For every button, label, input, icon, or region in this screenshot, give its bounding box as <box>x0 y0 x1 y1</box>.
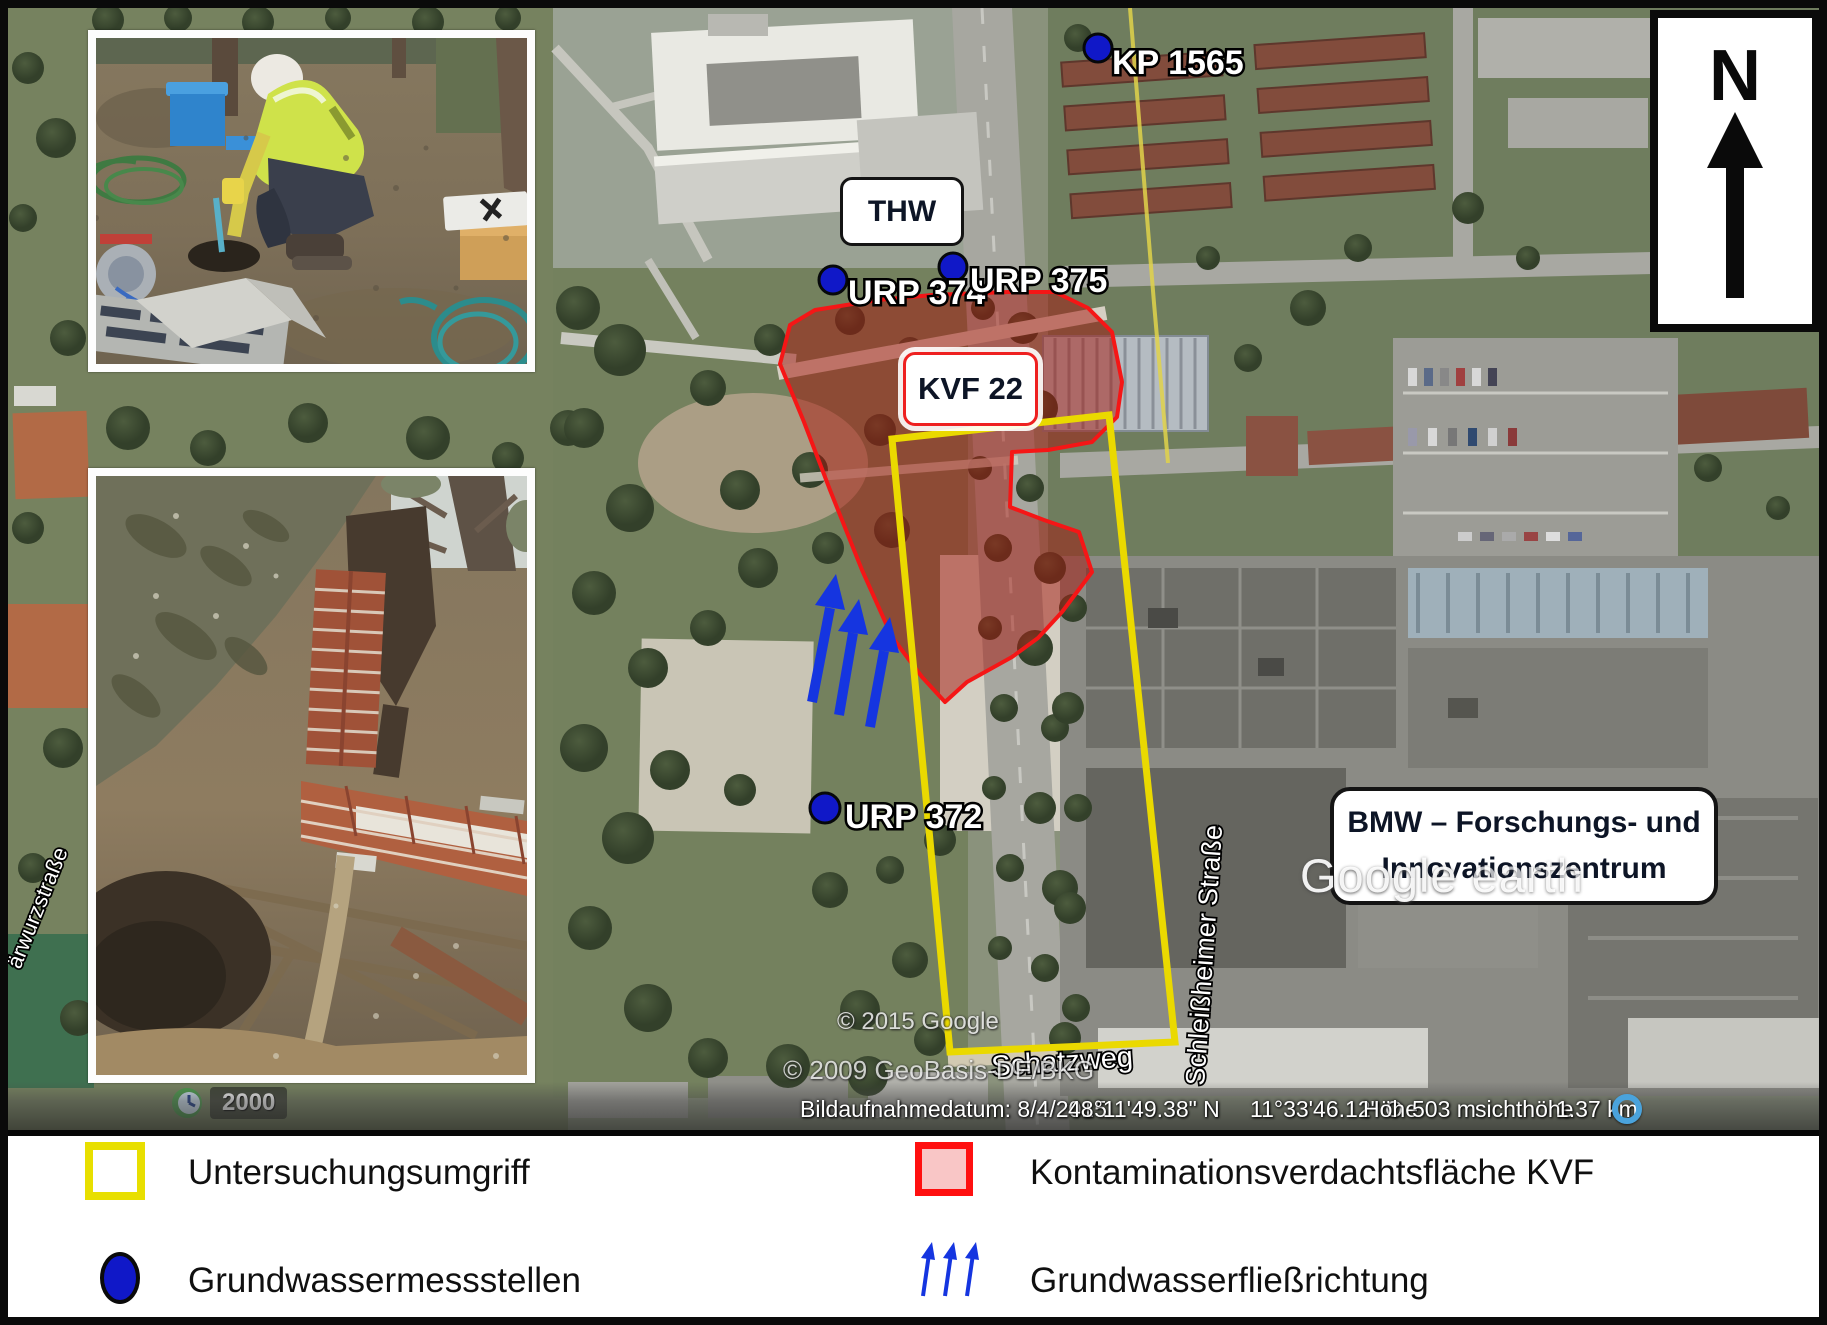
figure-frame: KP 1565 URP 374 URP 375 URP 372 Schleißh… <box>0 0 1827 1325</box>
legend-swatch-flow-arrows <box>913 1238 985 1300</box>
north-arrow-box: N <box>1650 10 1820 332</box>
north-label: N <box>1709 40 1761 112</box>
label-kp1565: KP 1565 <box>1112 44 1244 82</box>
google-earth-watermark: Google earth <box>1300 848 1584 903</box>
callout-kvf22: KVF 22 <box>903 352 1038 426</box>
status-latitude: 48°11'49.38" N <box>1068 1096 1220 1123</box>
inset-photo-excavation-profile <box>88 468 535 1083</box>
copyright-google: © 2015 Google <box>837 1008 999 1036</box>
legend-label-flow-direction: Grundwasserfließrichtung <box>1030 1261 1429 1301</box>
watermark-google: Google <box>1300 849 1458 902</box>
label-urp374: URP 374 <box>848 274 985 312</box>
well-urp374[interactable] <box>819 266 847 294</box>
google-earth-statusbar: Bildaufnahmedatum: 8/4/2015 48°11'49.38"… <box>8 1082 1819 1136</box>
well-urp372[interactable] <box>810 793 840 823</box>
legend-swatch-investigation <box>85 1142 145 1200</box>
legend: Untersuchungsumgriff Kontaminationsverda… <box>8 1136 1819 1317</box>
earth-ring-icon <box>1612 1094 1642 1124</box>
legend-swatch-contamination <box>915 1142 973 1196</box>
callout-thw-label: THW <box>868 195 936 229</box>
photo1-illustration <box>96 38 527 364</box>
watermark-earth: earth <box>1472 849 1584 902</box>
status-image-date: Bildaufnahmedatum: 8/4/2015 <box>800 1096 1107 1123</box>
legend-label-contamination: Kontaminationsverdachtsfläche KVF <box>1030 1153 1594 1193</box>
photo2-illustration <box>96 476 527 1075</box>
callout-bmw-line1: BMW – Forschungs- und <box>1347 800 1700 847</box>
legend-label-investigation: Untersuchungsumgriff <box>188 1153 530 1193</box>
status-elev-label: Höhe <box>1363 1096 1418 1123</box>
callout-thw: THW <box>840 177 964 246</box>
status-elev-value: 503 m <box>1412 1096 1476 1123</box>
label-urp375: URP 375 <box>970 262 1107 300</box>
label-urp372: URP 372 <box>845 798 982 836</box>
legend-swatch-well-dot <box>100 1252 140 1304</box>
legend-label-wells: Grundwassermessstellen <box>188 1261 581 1301</box>
well-kp1565[interactable] <box>1084 34 1112 62</box>
north-arrow-icon <box>1695 112 1775 302</box>
inset-photo-groundwater-sampling <box>88 30 535 372</box>
callout-kvf22-label: KVF 22 <box>918 371 1023 407</box>
